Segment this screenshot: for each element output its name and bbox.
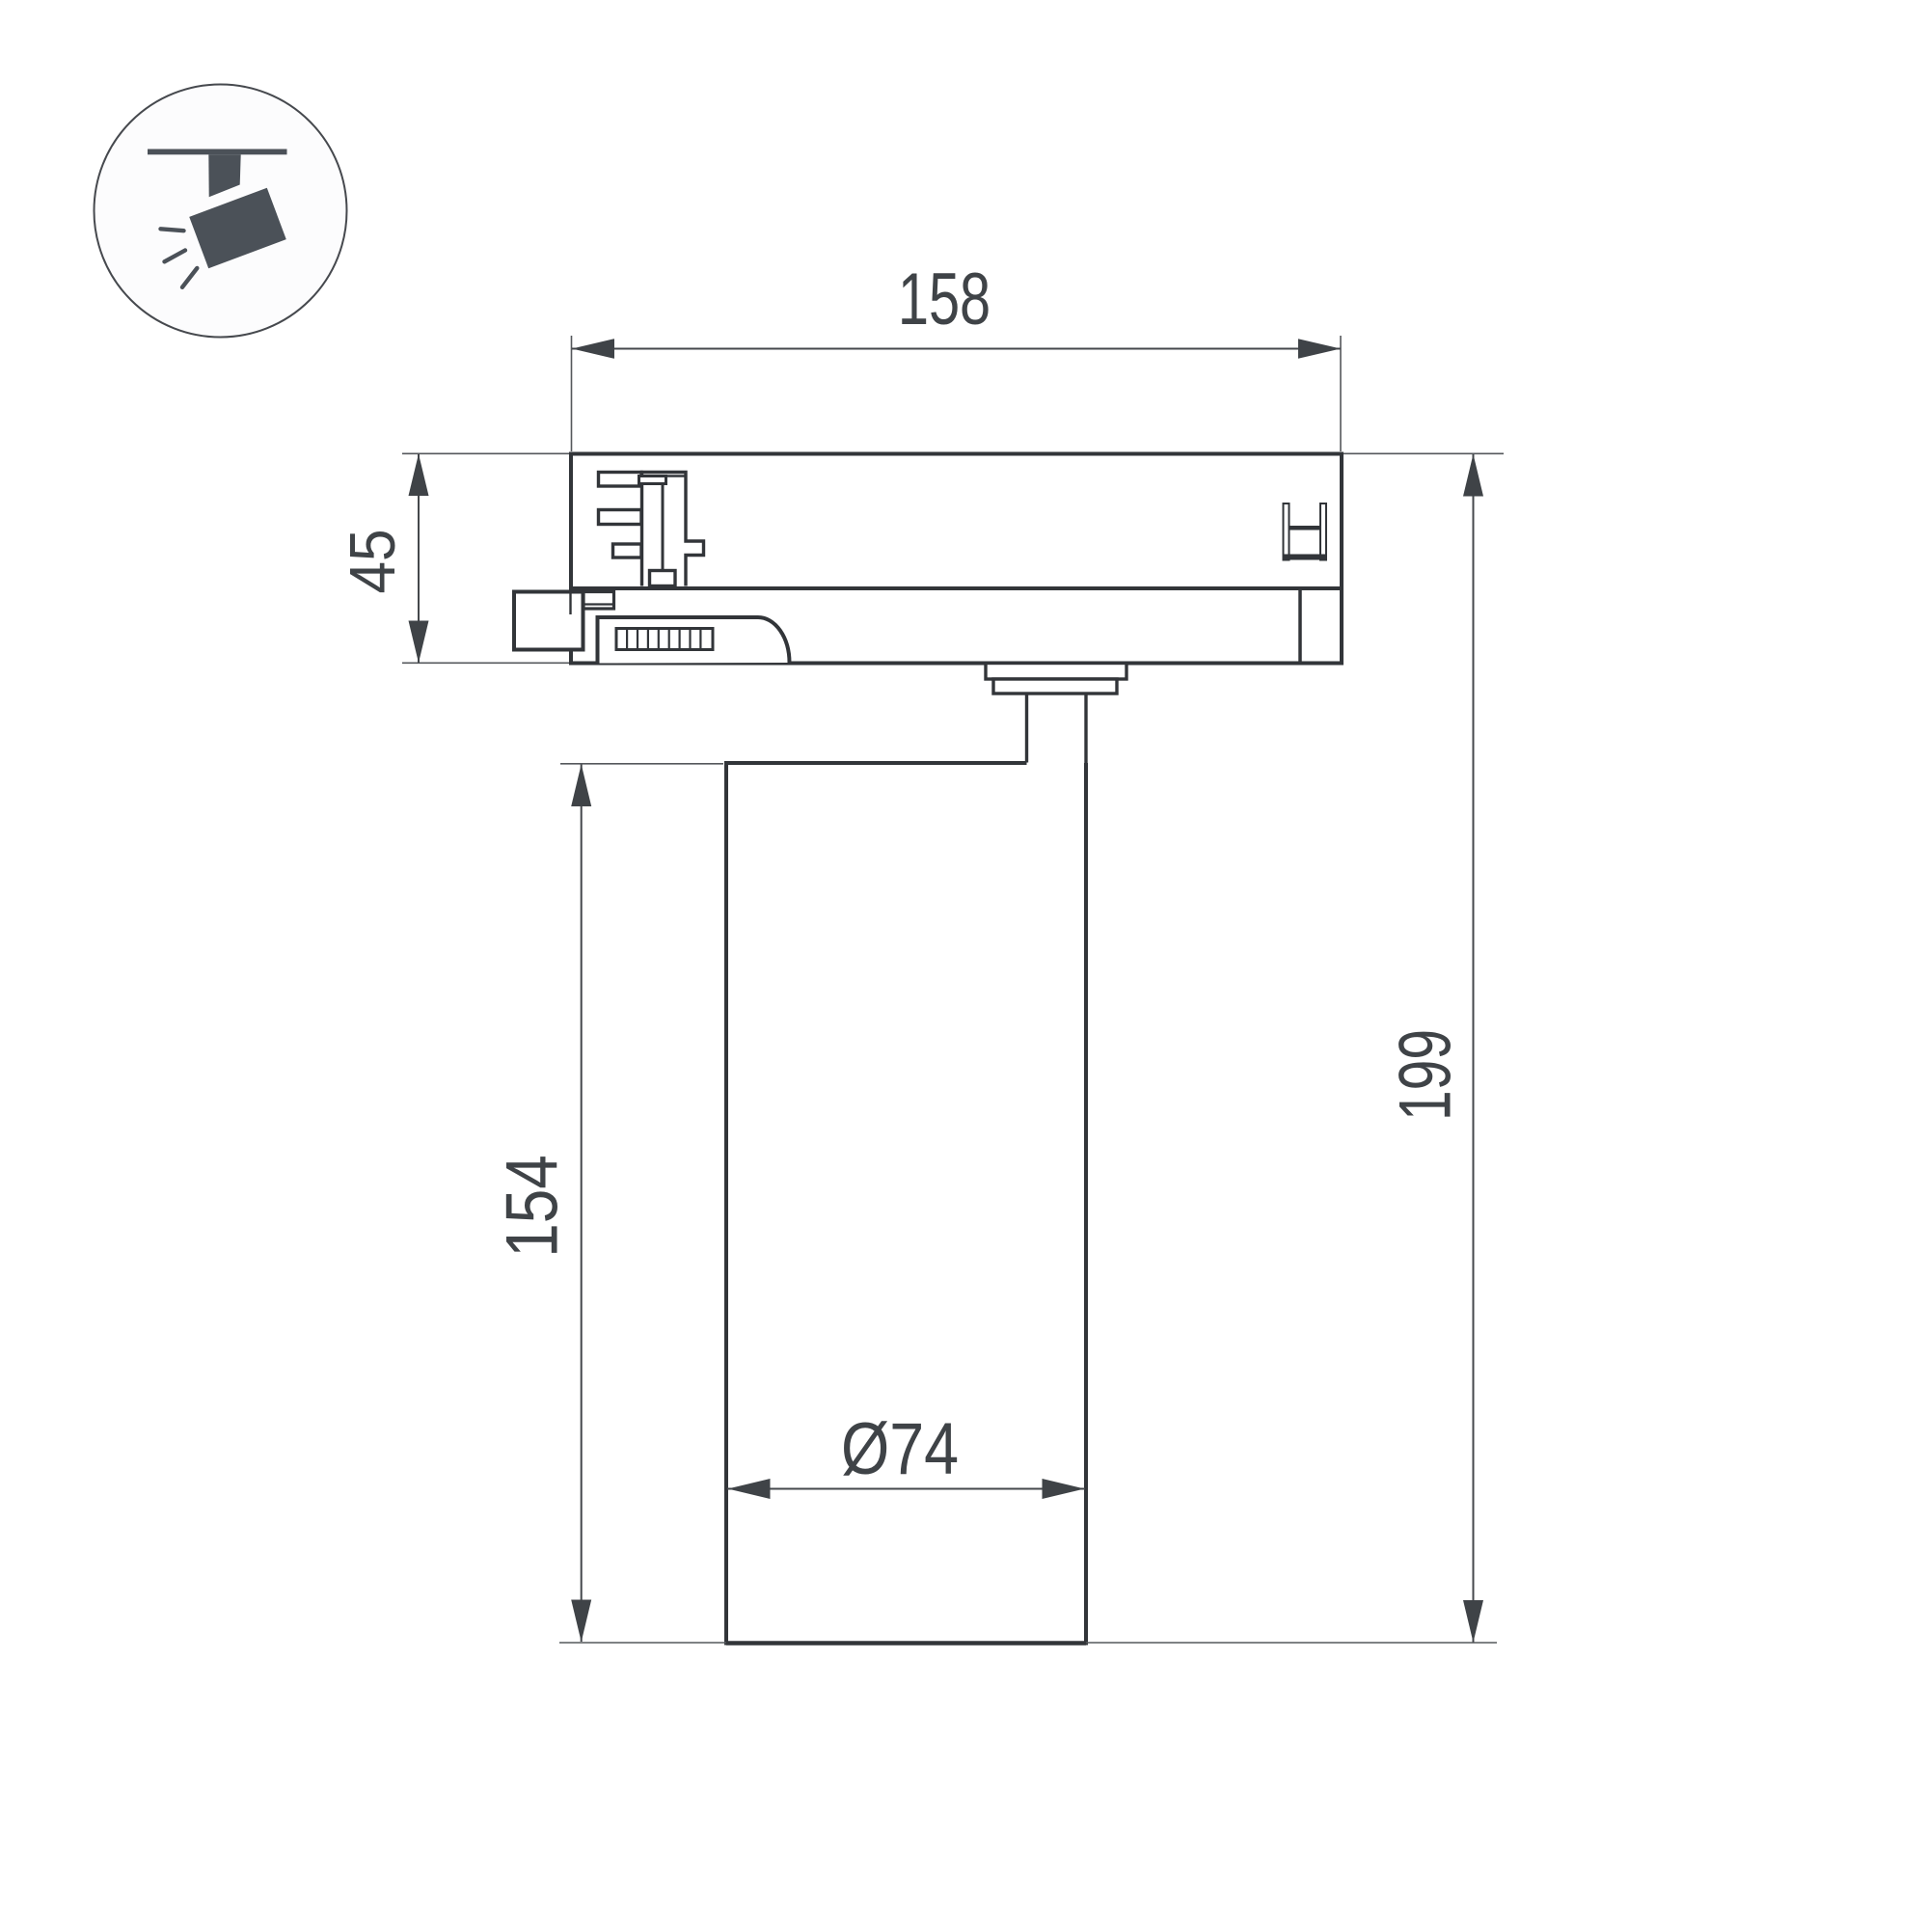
- svg-text:154: 154: [490, 1155, 573, 1258]
- svg-text:Ø74: Ø74: [841, 1407, 959, 1489]
- svg-text:45: 45: [336, 529, 409, 593]
- svg-text:158: 158: [898, 259, 991, 340]
- svg-text:199: 199: [1385, 1029, 1467, 1121]
